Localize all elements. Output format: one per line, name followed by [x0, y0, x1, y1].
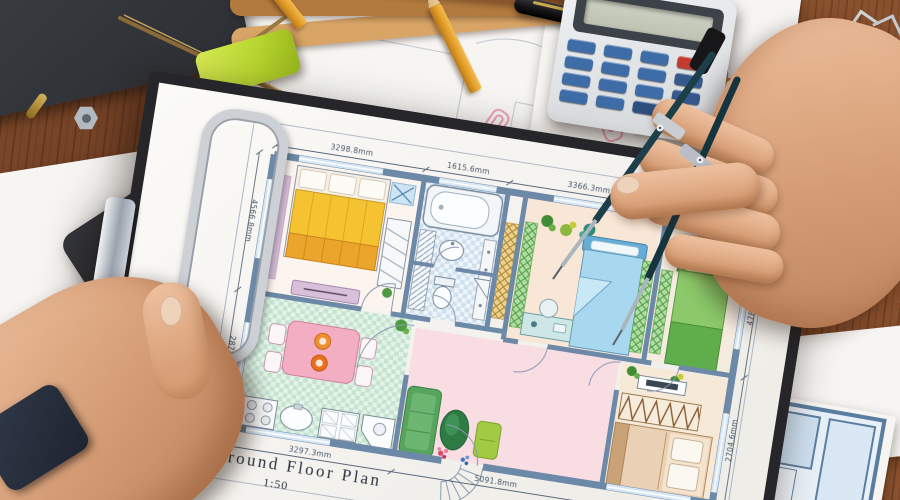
hex-nut-hole	[82, 114, 91, 123]
calculator-key	[601, 61, 631, 77]
calculator-key	[640, 50, 670, 66]
calculator-key	[567, 38, 597, 54]
calculator-key	[603, 44, 633, 60]
calculator-key	[635, 83, 665, 99]
calculator-key	[674, 72, 704, 88]
calculator-key	[598, 78, 628, 94]
white-calculator-lcd	[583, 0, 713, 43]
calculator-key	[637, 67, 667, 83]
calculator-key	[595, 94, 625, 110]
plan-scale: 1:50	[262, 475, 289, 493]
calculator-key	[564, 55, 594, 71]
left-thumb-nail	[160, 296, 182, 326]
desk-scene: 3298.8mm 1615.6mm 3366.3mm 4566.8mm 2878…	[0, 0, 900, 500]
dim-label-bottom-mid: 5091.8mm	[474, 474, 518, 490]
calculator-key	[559, 89, 589, 105]
calculator-key	[561, 72, 591, 88]
calculator-key	[676, 56, 706, 72]
